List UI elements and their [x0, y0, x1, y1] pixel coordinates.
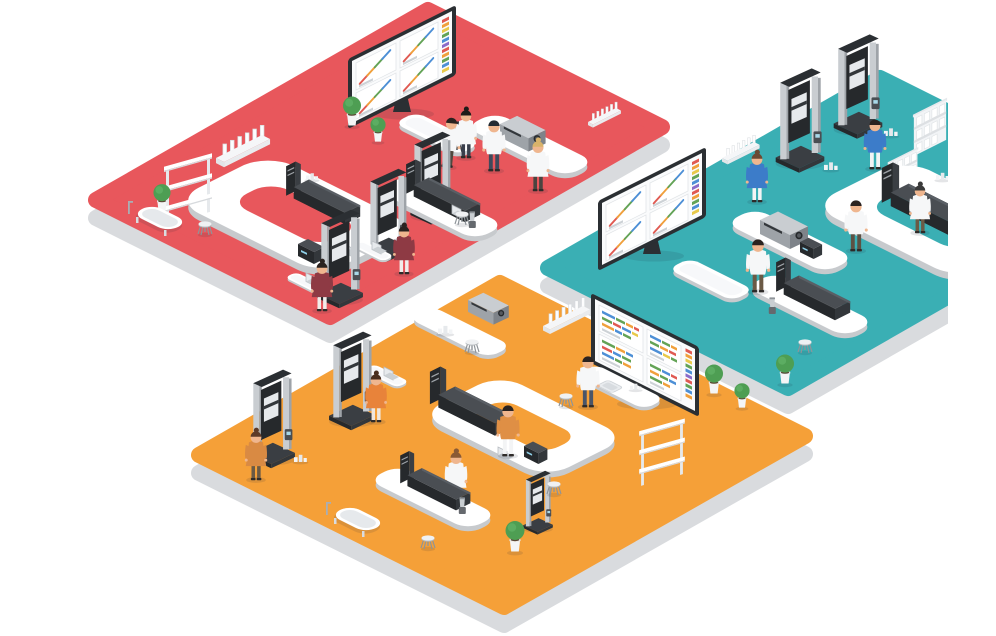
testing-machine: [776, 68, 825, 172]
testing-machine: [329, 332, 375, 431]
isometric-lab-scene: Isometric laboratory rooms illustration: [0, 0, 996, 636]
illustration-canvas: Isometric laboratory rooms illustration: [0, 0, 996, 636]
